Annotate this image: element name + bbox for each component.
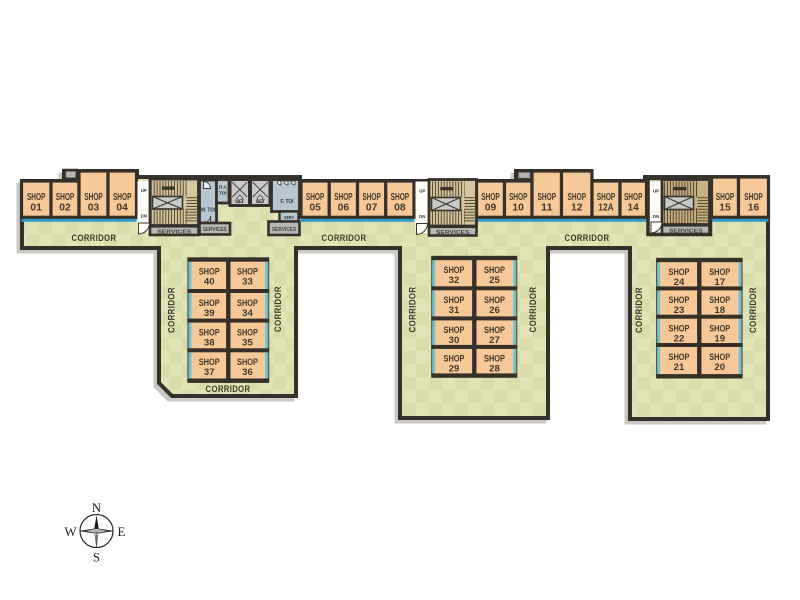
svg-text:12: 12 bbox=[571, 203, 583, 214]
svg-text:32: 32 bbox=[449, 275, 460, 286]
svg-text:38: 38 bbox=[204, 337, 215, 348]
svg-text:W. TOI: W. TOI bbox=[201, 208, 216, 214]
svg-text:21: 21 bbox=[674, 362, 685, 373]
svg-text:SHOP: SHOP bbox=[84, 192, 103, 203]
svg-text:CORRIDOR: CORRIDOR bbox=[748, 287, 759, 333]
svg-text:36: 36 bbox=[242, 367, 253, 378]
svg-text:SHOP: SHOP bbox=[624, 192, 643, 203]
svg-text:SERVICES: SERVICES bbox=[157, 229, 191, 235]
svg-text:SERVICES: SERVICES bbox=[669, 228, 703, 234]
svg-text:34: 34 bbox=[242, 308, 253, 319]
svg-text:11: 11 bbox=[541, 203, 553, 214]
svg-text:24: 24 bbox=[674, 277, 685, 288]
svg-text:04: 04 bbox=[116, 203, 128, 214]
svg-text:UP: UP bbox=[419, 189, 425, 194]
svg-text:UP: UP bbox=[653, 189, 659, 194]
svg-text:CORRIDOR: CORRIDOR bbox=[206, 384, 251, 395]
svg-text:22: 22 bbox=[674, 334, 685, 345]
svg-text:SHOP: SHOP bbox=[716, 192, 735, 203]
svg-text:37: 37 bbox=[204, 367, 215, 378]
svg-text:SHOP: SHOP bbox=[568, 192, 587, 203]
svg-text:SHOP: SHOP bbox=[56, 192, 75, 203]
svg-text:39: 39 bbox=[204, 308, 215, 319]
svg-text:CORRIDOR: CORRIDOR bbox=[634, 287, 645, 333]
svg-text:06: 06 bbox=[338, 203, 350, 214]
svg-text:CORRIDOR: CORRIDOR bbox=[565, 233, 610, 244]
svg-text:SERVICES: SERVICES bbox=[272, 227, 296, 233]
svg-text:SERVICES: SERVICES bbox=[203, 227, 227, 233]
svg-text:17: 17 bbox=[714, 277, 725, 288]
svg-text:LIFT: LIFT bbox=[256, 199, 265, 204]
svg-text:27: 27 bbox=[489, 335, 500, 346]
svg-text:SHOP: SHOP bbox=[538, 192, 557, 203]
svg-text:07: 07 bbox=[366, 203, 378, 214]
svg-text:CORRIDOR: CORRIDOR bbox=[72, 233, 117, 244]
svg-text:40: 40 bbox=[204, 276, 215, 287]
svg-text:D.A: D.A bbox=[219, 185, 228, 190]
svg-text:35: 35 bbox=[242, 337, 253, 348]
svg-text:16: 16 bbox=[748, 203, 760, 214]
svg-text:SERVICES: SERVICES bbox=[436, 230, 470, 236]
svg-text:F. TOI: F. TOI bbox=[281, 199, 295, 205]
svg-text:SHOP: SHOP bbox=[597, 192, 616, 203]
svg-text:23: 23 bbox=[674, 305, 685, 316]
svg-text:SHOP: SHOP bbox=[27, 192, 46, 203]
svg-text:SHOP: SHOP bbox=[113, 192, 132, 203]
svg-text:CORRIDOR: CORRIDOR bbox=[167, 287, 178, 333]
svg-text:SHOP: SHOP bbox=[744, 192, 763, 203]
svg-text:31: 31 bbox=[449, 305, 460, 316]
svg-text:SHOP: SHOP bbox=[334, 192, 353, 203]
svg-text:SHOP: SHOP bbox=[306, 192, 325, 203]
svg-text:DN: DN bbox=[419, 214, 425, 219]
svg-text:SERV: SERV bbox=[284, 215, 294, 220]
svg-text:14: 14 bbox=[627, 203, 639, 214]
svg-text:02: 02 bbox=[59, 203, 71, 214]
svg-text:CORRIDOR: CORRIDOR bbox=[273, 286, 284, 332]
svg-text:09: 09 bbox=[485, 203, 497, 214]
svg-text:SHOP: SHOP bbox=[362, 192, 381, 203]
svg-text:CORRIDOR: CORRIDOR bbox=[322, 233, 367, 244]
svg-text:SHOP: SHOP bbox=[391, 192, 410, 203]
svg-text:26: 26 bbox=[489, 305, 500, 316]
svg-text:UP: UP bbox=[141, 188, 147, 193]
svg-text:TOI: TOI bbox=[219, 191, 227, 196]
svg-text:12A: 12A bbox=[598, 203, 614, 214]
svg-text:18: 18 bbox=[714, 305, 725, 316]
svg-text:05: 05 bbox=[309, 203, 321, 214]
svg-text:08: 08 bbox=[394, 203, 406, 214]
svg-text:10: 10 bbox=[512, 203, 524, 214]
svg-text:01: 01 bbox=[30, 203, 42, 214]
svg-text:15: 15 bbox=[719, 203, 731, 214]
svg-text:CORRIDOR: CORRIDOR bbox=[528, 287, 539, 333]
svg-text:CORRIDOR: CORRIDOR bbox=[408, 287, 419, 333]
svg-text:LIFT: LIFT bbox=[235, 199, 244, 204]
svg-text:SHOP: SHOP bbox=[509, 192, 528, 203]
svg-text:W: W bbox=[64, 524, 77, 539]
svg-text:28: 28 bbox=[489, 364, 500, 375]
svg-text:DN: DN bbox=[653, 214, 659, 219]
svg-text:SHOP: SHOP bbox=[481, 192, 500, 203]
svg-text:30: 30 bbox=[449, 335, 460, 346]
svg-text:20: 20 bbox=[714, 362, 725, 373]
svg-text:S: S bbox=[93, 550, 100, 565]
svg-text:N: N bbox=[92, 500, 102, 515]
svg-text:DN: DN bbox=[141, 214, 147, 219]
svg-text:25: 25 bbox=[489, 275, 500, 286]
svg-text:19: 19 bbox=[714, 334, 725, 345]
svg-text:03: 03 bbox=[88, 203, 100, 214]
svg-text:29: 29 bbox=[449, 364, 460, 375]
svg-text:33: 33 bbox=[242, 276, 253, 287]
svg-text:E: E bbox=[118, 524, 126, 539]
